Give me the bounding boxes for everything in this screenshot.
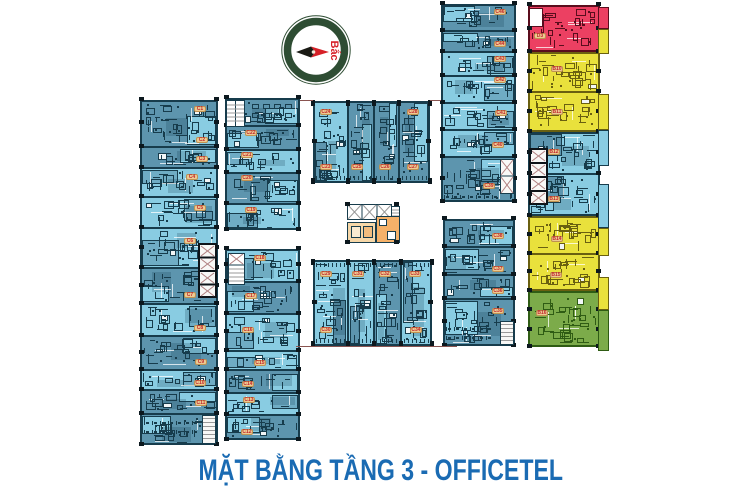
svg-text:Bắc: Bắc <box>328 41 341 61</box>
